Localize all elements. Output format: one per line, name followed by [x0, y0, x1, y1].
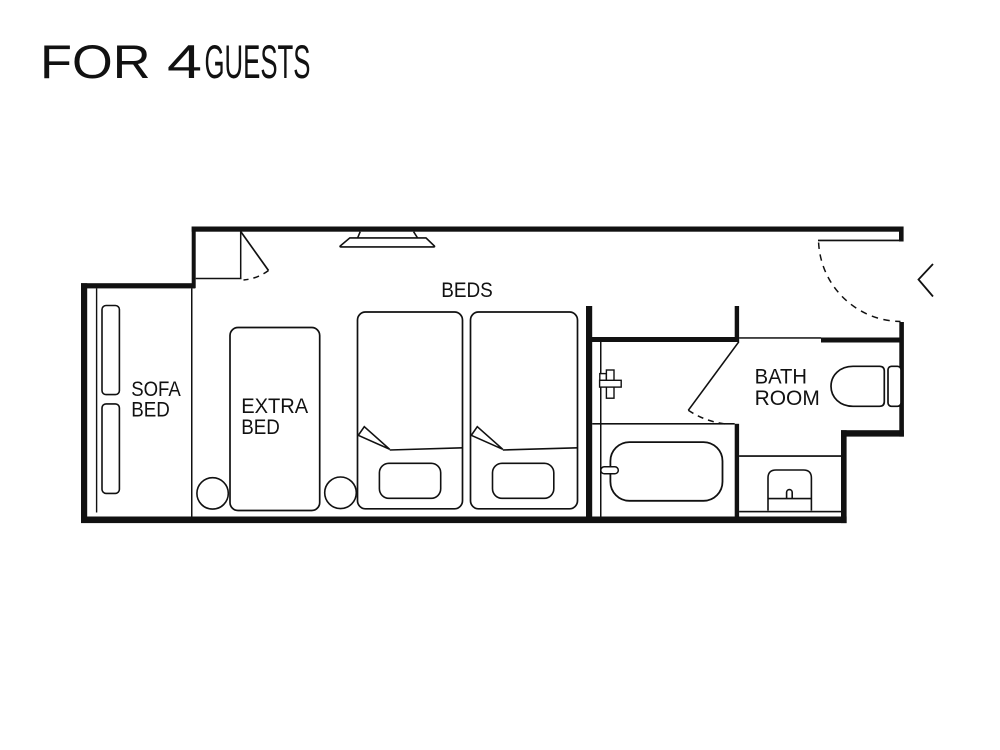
svg-text:FOR4GUESTS: FOR4GUESTS	[40, 35, 311, 88]
svg-text:BED: BED	[241, 415, 280, 439]
svg-text:BED: BED	[131, 398, 170, 422]
svg-text:BATH: BATH	[755, 364, 807, 388]
svg-text:ROOM: ROOM	[755, 386, 820, 410]
svg-text:BEDS: BEDS	[441, 278, 493, 302]
